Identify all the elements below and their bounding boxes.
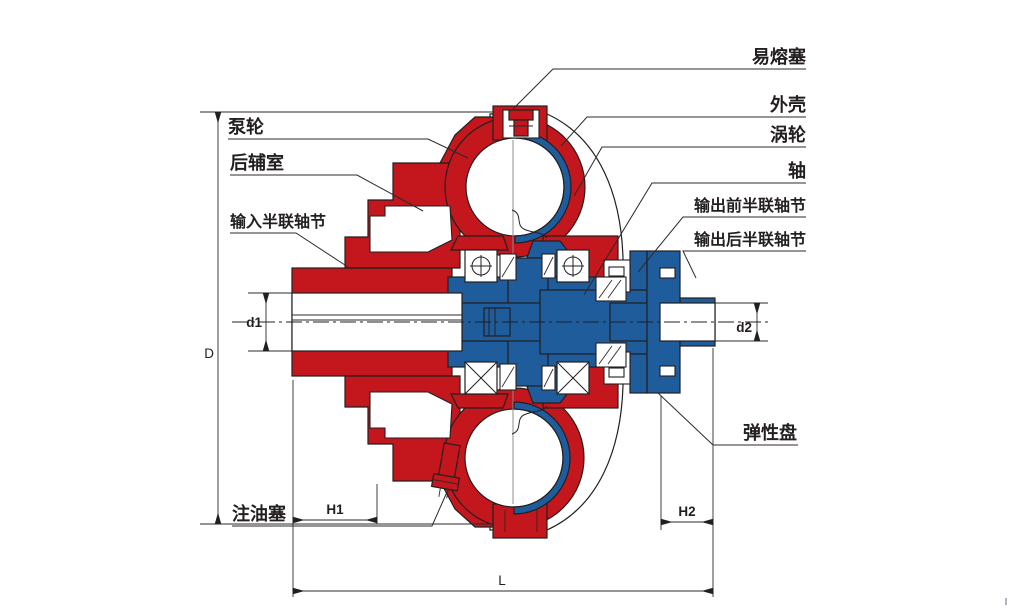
label-fusible-plug: 易熔塞 bbox=[752, 46, 807, 67]
flange-notch-upper bbox=[660, 268, 675, 278]
seal-lower-mid bbox=[542, 366, 555, 390]
dim-label-H2: H2 bbox=[678, 504, 695, 519]
seal-lower-left bbox=[500, 364, 516, 390]
label-input-coupling: 输入半联轴节 bbox=[230, 212, 326, 231]
dim-label-d1: d1 bbox=[246, 315, 262, 330]
dim-label-H1: H1 bbox=[326, 502, 344, 517]
dim-label-L: L bbox=[498, 573, 506, 588]
pump-hub-pedestal-upper bbox=[451, 236, 508, 250]
coupling-bolt-head-lower bbox=[609, 368, 624, 377]
label-shaft: 轴 bbox=[788, 160, 806, 181]
label-output-front-coupling: 输出前半联轴节 bbox=[694, 196, 806, 215]
label-elastic-disc: 弹性盘 bbox=[743, 422, 797, 443]
label-pump-wheel: 泵轮 bbox=[228, 116, 264, 137]
seal-upper-mid bbox=[542, 254, 555, 278]
output-front-coupling-flange-upper bbox=[630, 251, 647, 290]
pump-hub-pedestal-lower bbox=[451, 394, 508, 408]
label-rear-chamber: 后辅室 bbox=[230, 152, 284, 173]
bearing-upper-left bbox=[465, 250, 497, 282]
flange-notch-lower bbox=[660, 366, 675, 376]
bearing-lower-right bbox=[557, 362, 589, 394]
label-oil-plug: 注油塞 bbox=[232, 503, 287, 524]
fusible-plug-detail bbox=[503, 110, 539, 138]
drawing-canvas: D d1 d2 H1 H2 L bbox=[0, 0, 1013, 610]
gland-upper-right bbox=[596, 277, 626, 301]
coupling-bolt-head-upper bbox=[609, 267, 624, 276]
bearing-lower-left bbox=[465, 362, 497, 394]
dim-label-d2: d2 bbox=[736, 320, 752, 335]
label-turbine: 涡轮 bbox=[770, 124, 806, 145]
bearing-upper-right bbox=[557, 250, 589, 282]
seal-upper-left bbox=[500, 254, 516, 280]
gland-lower-right bbox=[596, 343, 626, 367]
label-output-rear-coupling: 输出后半联轴节 bbox=[694, 230, 806, 249]
output-front-coupling-flange-lower bbox=[630, 354, 647, 393]
fluid-coupling-drawing: D d1 d2 H1 H2 L bbox=[0, 0, 1013, 610]
label-housing: 外壳 bbox=[770, 94, 806, 115]
dim-label-D: D bbox=[204, 346, 214, 361]
